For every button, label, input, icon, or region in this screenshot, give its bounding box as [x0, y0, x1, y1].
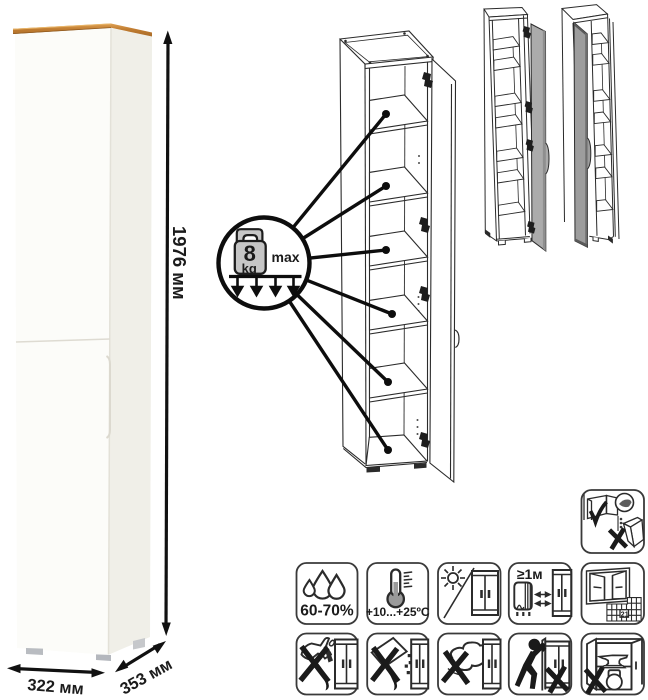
svg-text:+10...+25ºC: +10...+25ºC [366, 605, 430, 619]
svg-text:1976 мм: 1976 мм [169, 226, 190, 300]
svg-text:kg: kg [242, 261, 257, 276]
svg-text:21: 21 [621, 611, 629, 618]
svg-text:max: max [272, 249, 300, 265]
svg-text:60-70%: 60-70% [300, 603, 354, 620]
svg-text:≥1м: ≥1м [517, 566, 543, 582]
